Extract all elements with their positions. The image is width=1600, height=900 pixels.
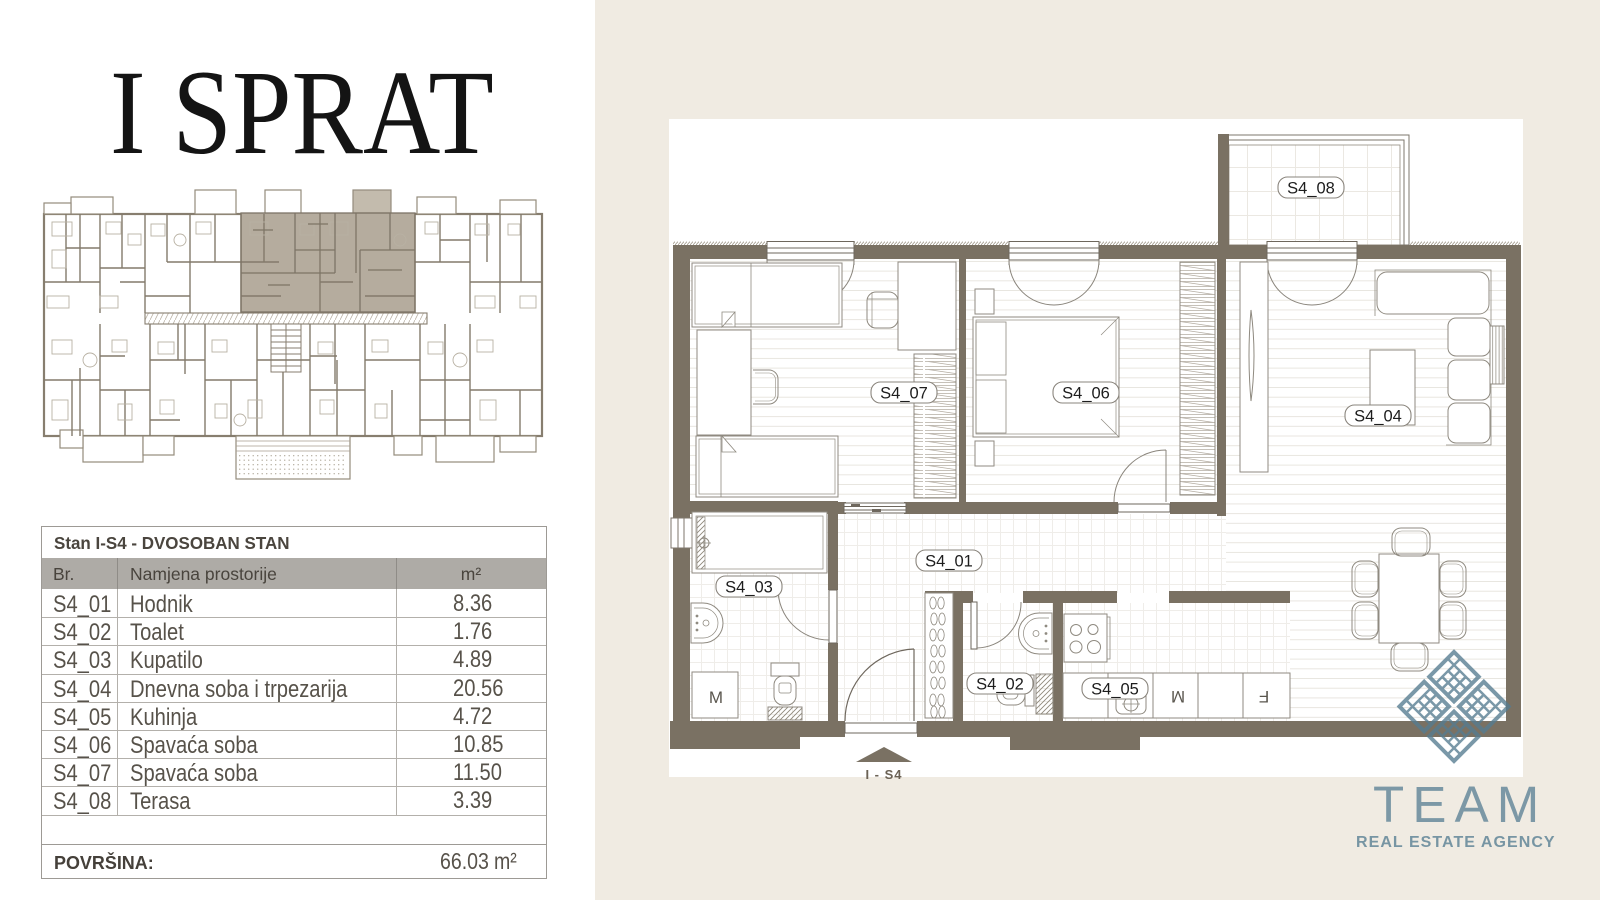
svg-text:M: M [1171,687,1185,706]
svg-text:S4_02: S4_02 [976,676,1024,694]
svg-text:S4_04: S4_04 [1354,408,1402,426]
svg-text:S4_07: S4_07 [880,385,928,403]
svg-text:TEAM: TEAM [1373,776,1547,833]
svg-text:S4_05: S4_05 [1091,681,1139,699]
svg-text:S4_06: S4_06 [1062,385,1110,403]
svg-text:I - S4: I - S4 [865,767,902,782]
svg-text:F: F [1259,687,1269,706]
svg-text:S4_08: S4_08 [1287,180,1335,198]
svg-text:M: M [709,688,723,707]
svg-text:S4_01: S4_01 [925,553,973,571]
svg-text:S4_03: S4_03 [725,579,773,597]
svg-text:REAL ESTATE AGENCY: REAL ESTATE AGENCY [1356,834,1556,851]
